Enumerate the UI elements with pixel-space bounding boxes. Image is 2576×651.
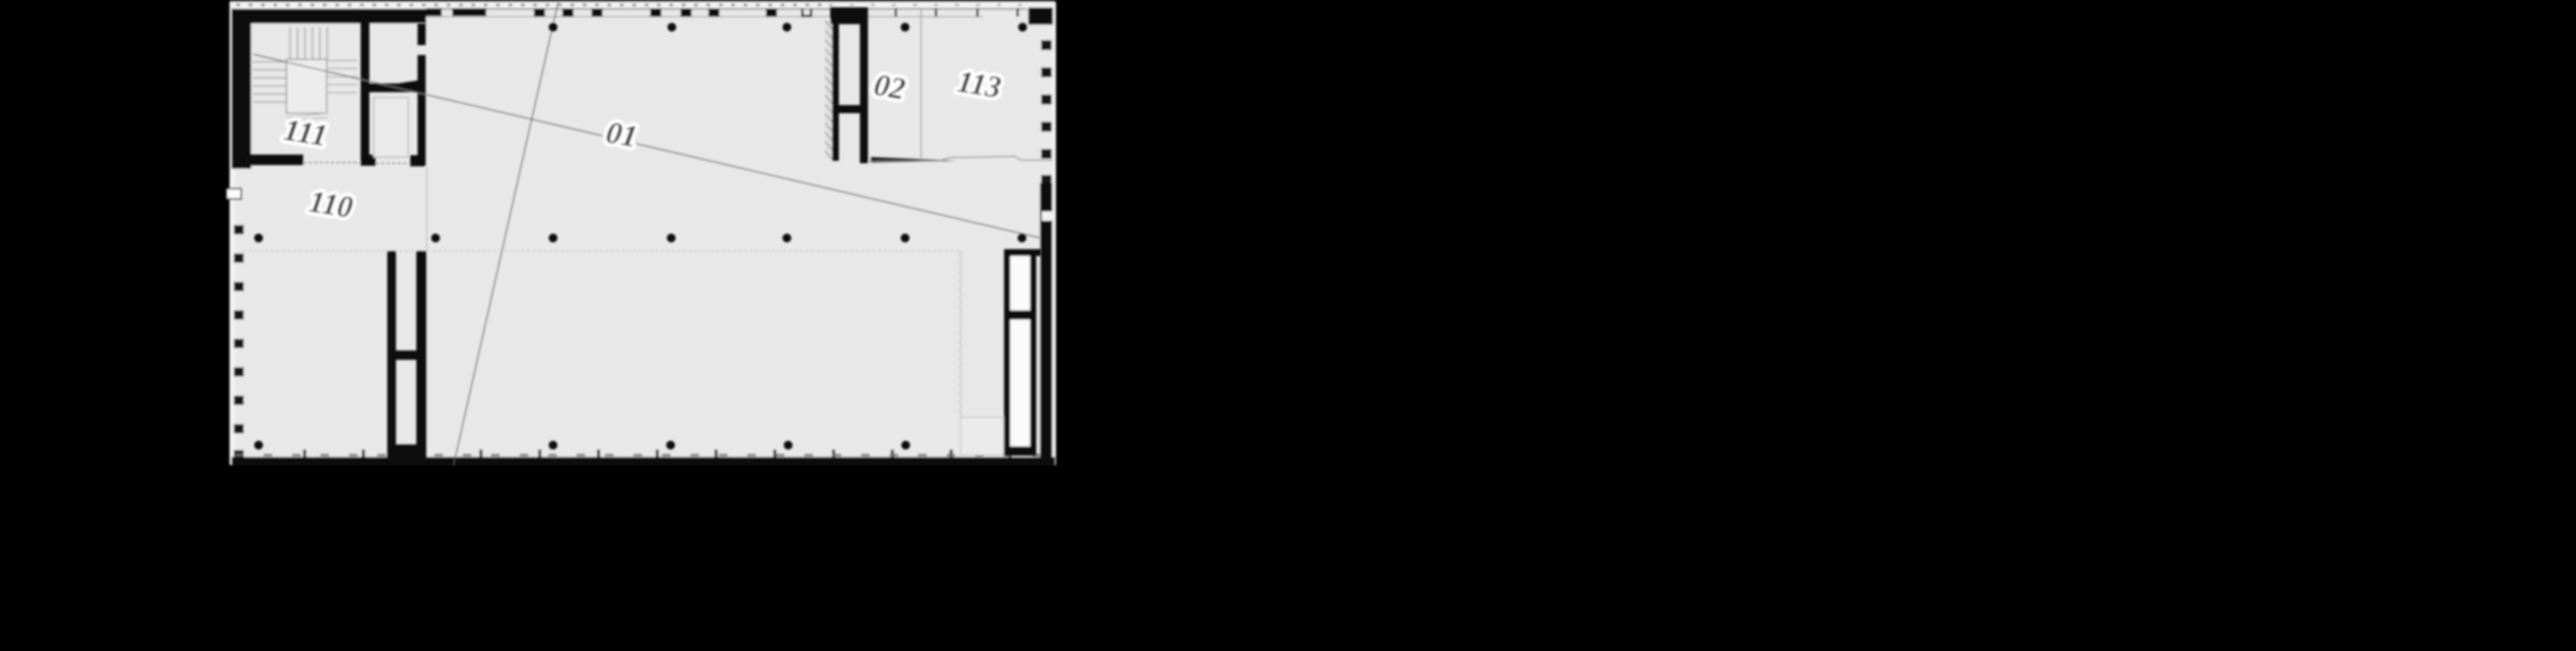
svg-text:111: 111 — [281, 112, 330, 153]
svg-text:113: 113 — [955, 64, 1003, 104]
svg-text:01: 01 — [604, 114, 640, 154]
svg-text:110: 110 — [307, 184, 355, 224]
svg-text:02: 02 — [872, 67, 908, 106]
